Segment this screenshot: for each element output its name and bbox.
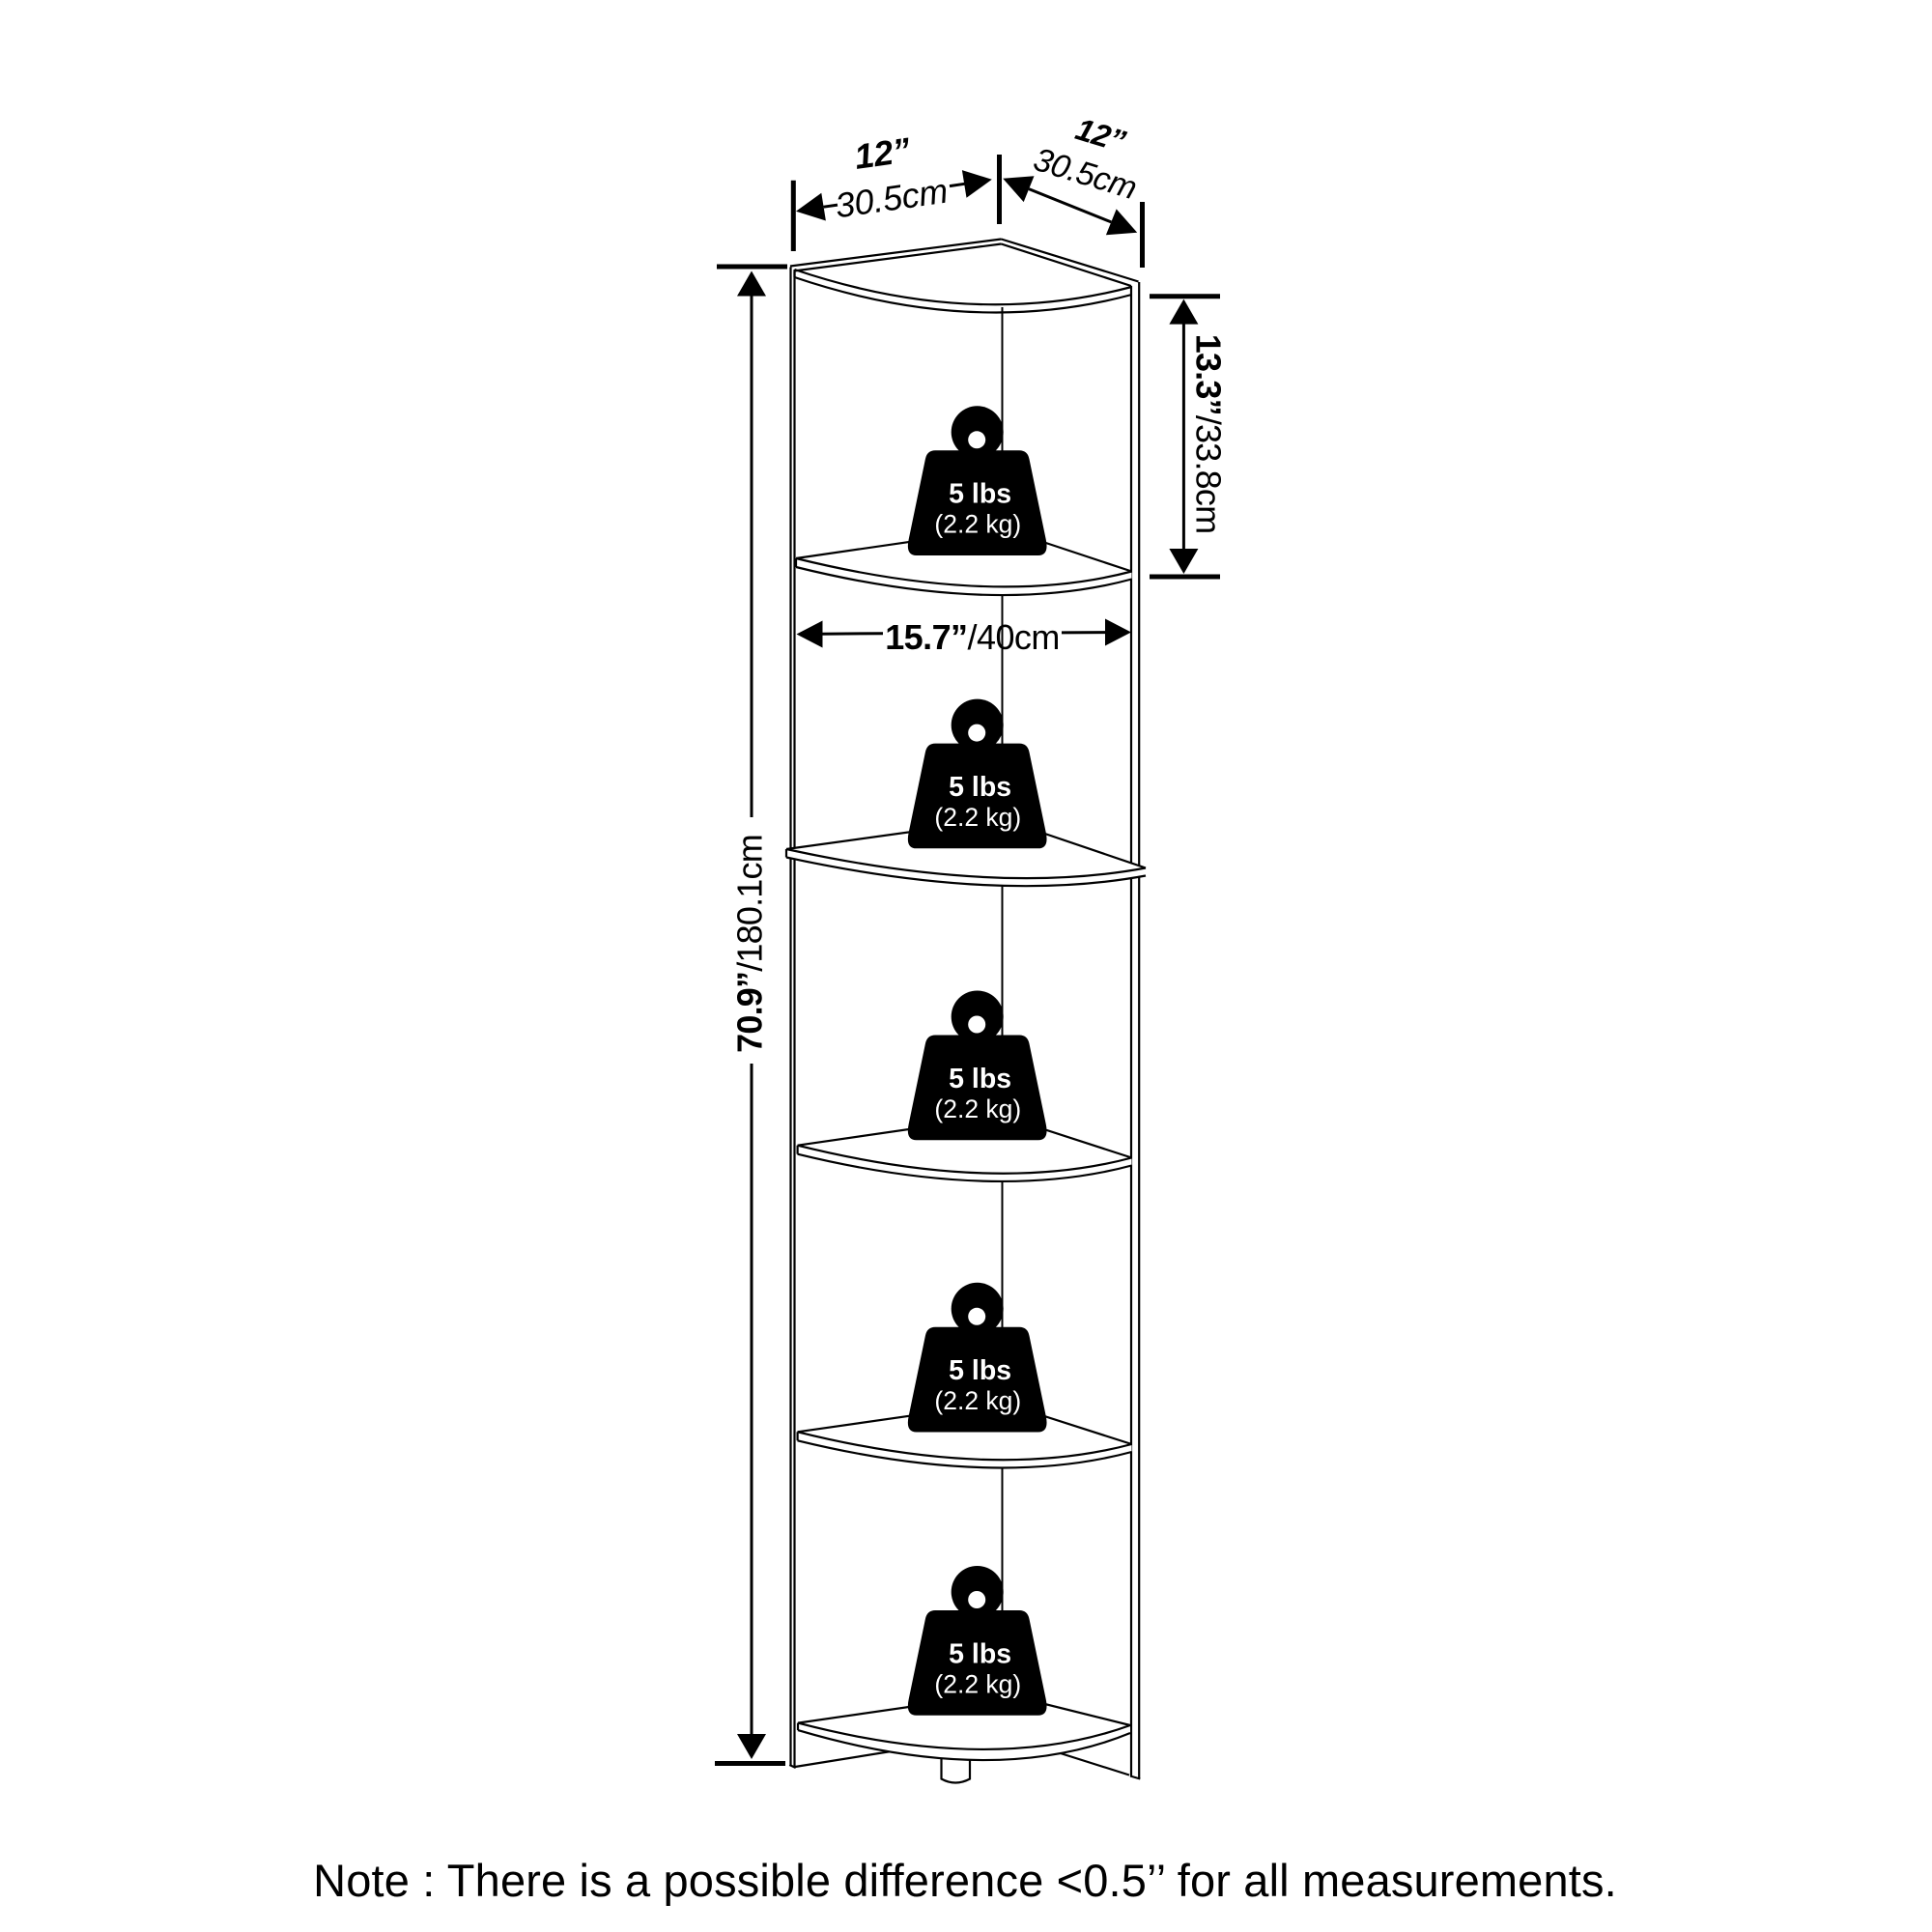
svg-text:(2.2 kg): (2.2 kg) <box>934 1386 1021 1415</box>
svg-text:(2.2 kg): (2.2 kg) <box>934 1669 1021 1698</box>
svg-text:13.3”/33.8cm: 13.3”/33.8cm <box>1189 334 1229 534</box>
svg-text:(2.2 kg): (2.2 kg) <box>934 510 1021 539</box>
svg-text:5 lbs: 5 lbs <box>949 1064 1011 1094</box>
svg-text:(2.2 kg): (2.2 kg) <box>934 1094 1021 1123</box>
svg-text:5 lbs: 5 lbs <box>949 479 1011 510</box>
svg-text:5 lbs: 5 lbs <box>949 1638 1011 1669</box>
svg-text:70.9”/180.1cm: 70.9”/180.1cm <box>730 835 770 1053</box>
svg-text:12”: 12” <box>852 129 913 177</box>
svg-text:5 lbs: 5 lbs <box>949 1355 1011 1386</box>
svg-text:5 lbs: 5 lbs <box>949 772 1011 803</box>
svg-text:(2.2 kg): (2.2 kg) <box>934 803 1021 832</box>
svg-text:15.7”/40cm: 15.7”/40cm <box>885 617 1060 657</box>
svg-text:Note : There is a possible dif: Note : There is a possible difference <0… <box>313 1855 1617 1906</box>
